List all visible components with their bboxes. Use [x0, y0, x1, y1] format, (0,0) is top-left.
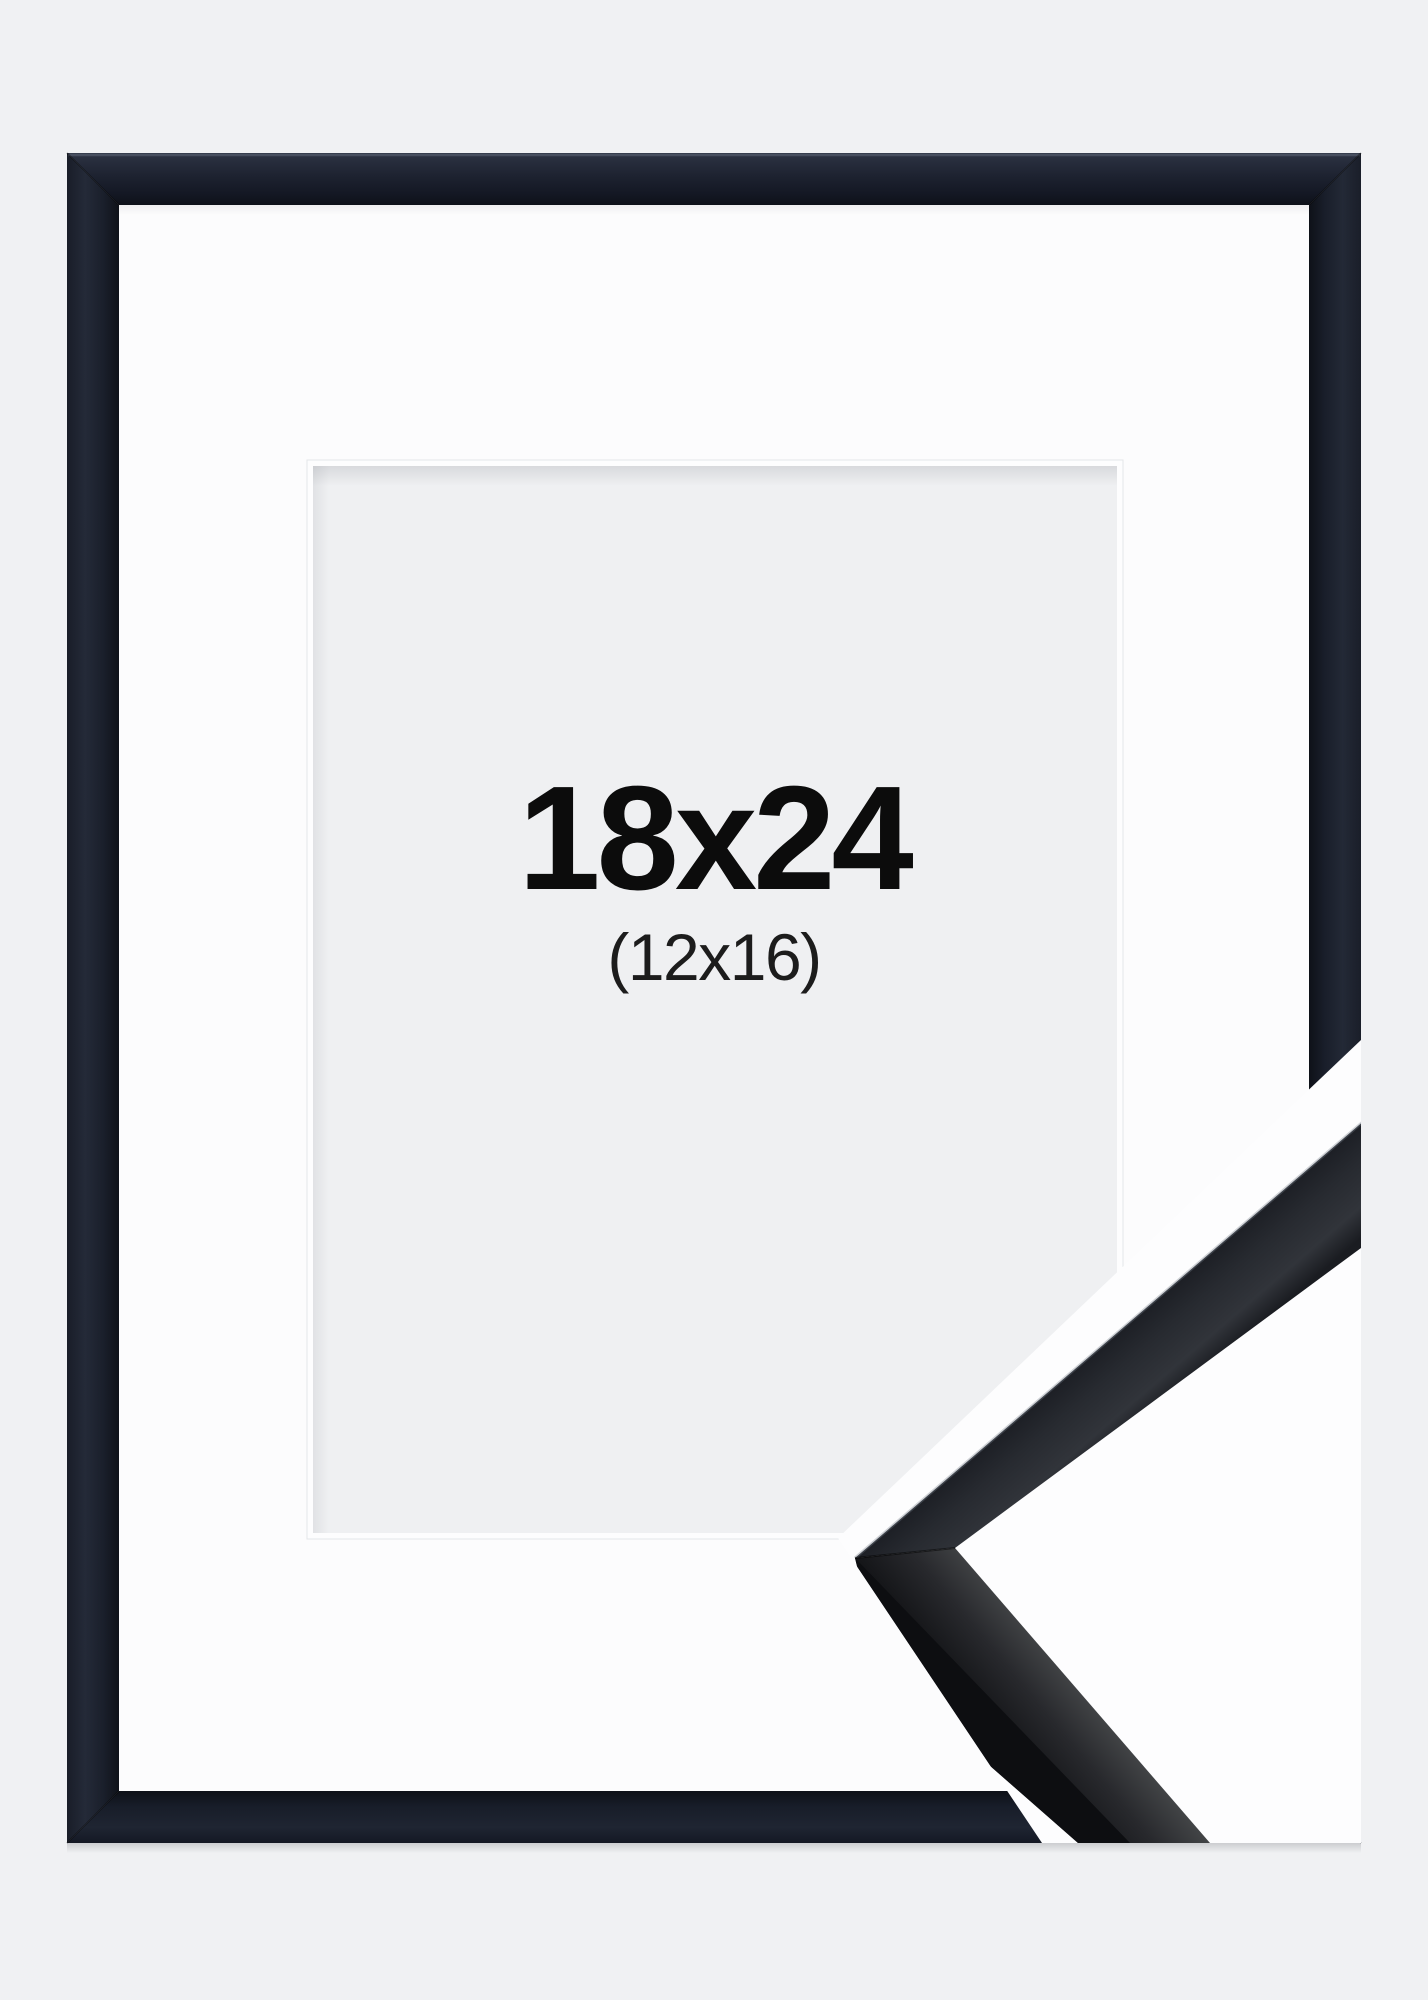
mat-opening [313, 466, 1117, 1533]
opening-top-shadow [313, 466, 1117, 486]
frame-shadow [67, 1843, 1361, 1853]
frame-left-bar [67, 153, 119, 1843]
frame-top-bar [67, 153, 1361, 205]
product-image[interactable]: 18x24 (12x16) [0, 0, 1428, 2000]
size-label: 18x24 [518, 756, 913, 921]
mat-inner-shadow [119, 205, 1309, 215]
opening-left-shadow [313, 466, 329, 1533]
matted-size-label: (12x16) [607, 920, 820, 994]
frame-product-photo: 18x24 (12x16) [0, 0, 1428, 2000]
